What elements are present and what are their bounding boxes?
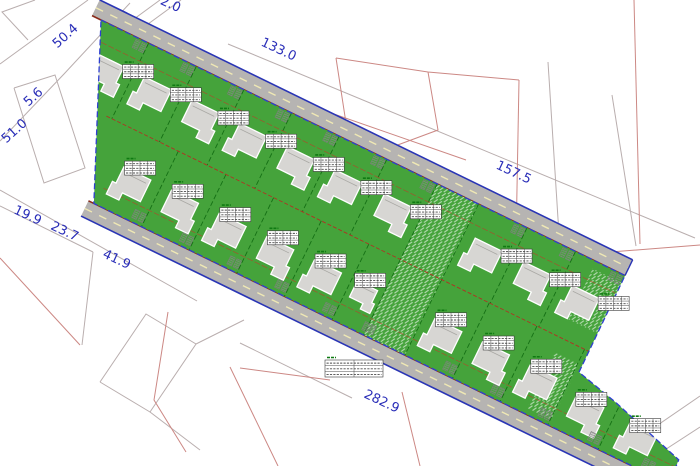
lot-info-table <box>501 247 532 264</box>
lot-info-table <box>123 62 154 79</box>
lot-info-table <box>483 334 514 351</box>
lot-info-table <box>550 270 581 287</box>
lot-info-table <box>325 358 383 378</box>
dimension-label: 5.6 <box>21 85 46 110</box>
dimension-label: 2.0 <box>158 0 183 16</box>
lot-info-table <box>172 182 203 199</box>
cadastral-boundary-line <box>196 320 244 344</box>
lot-info-table <box>218 108 249 125</box>
cadastral-boundary-line <box>2 0 35 40</box>
dimension-label: 19.9 <box>11 203 44 229</box>
lot-info-table <box>598 294 629 311</box>
lot-info-table <box>436 310 467 327</box>
lot-info-table <box>315 252 346 269</box>
lot-info-table <box>630 416 661 433</box>
cadastral-boundary-line <box>82 252 93 345</box>
dimension-label: 50.4 <box>50 21 82 52</box>
lot-info-table <box>220 205 251 222</box>
cadastral-boundary-line <box>100 314 196 412</box>
site-plan-drawing: 2.050.45.651.019.923.741.9133.0157.5282.… <box>0 0 700 466</box>
lot-info-table <box>361 178 392 195</box>
lot-info-table <box>125 159 156 176</box>
lot-info-table <box>410 202 441 219</box>
dimension-label: 23.7 <box>48 219 81 245</box>
lot-info-table <box>266 132 297 149</box>
lot-info-table <box>267 228 298 245</box>
cadastral-parcel-line <box>0 258 80 345</box>
cadastral-parcel-line <box>634 0 640 244</box>
lot-info-table <box>576 390 607 407</box>
dimension-label: 282.9 <box>361 387 401 416</box>
site-plan-canvas: 2.050.45.651.019.923.741.9133.0157.5282.… <box>0 0 700 466</box>
dimension-label: 133.0 <box>258 35 298 64</box>
lot-info-table <box>355 271 386 288</box>
lot-info-table <box>170 85 201 102</box>
cadastral-parcel-line <box>336 58 519 80</box>
cadastral-parcel-line <box>230 367 278 466</box>
dimension-label: 51.0 <box>0 116 30 147</box>
cadastral-boundary-line <box>150 412 200 450</box>
cadastral-parcel-line <box>240 368 330 380</box>
lot-info-table <box>531 357 562 374</box>
cadastral-boundary-line <box>612 95 636 246</box>
lot-info-table <box>313 155 344 172</box>
cadastral-parcel-line <box>402 392 420 466</box>
dimension-label: 41.9 <box>100 247 133 273</box>
